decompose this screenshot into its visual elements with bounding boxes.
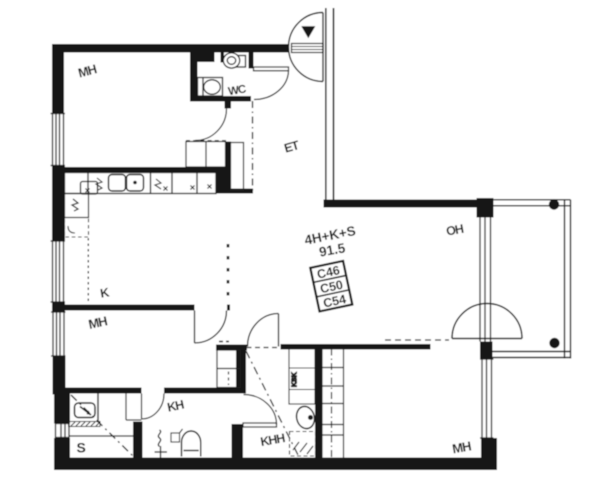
svg-text:S: S: [77, 440, 86, 456]
svg-text:KSK: KSK: [292, 372, 299, 387]
